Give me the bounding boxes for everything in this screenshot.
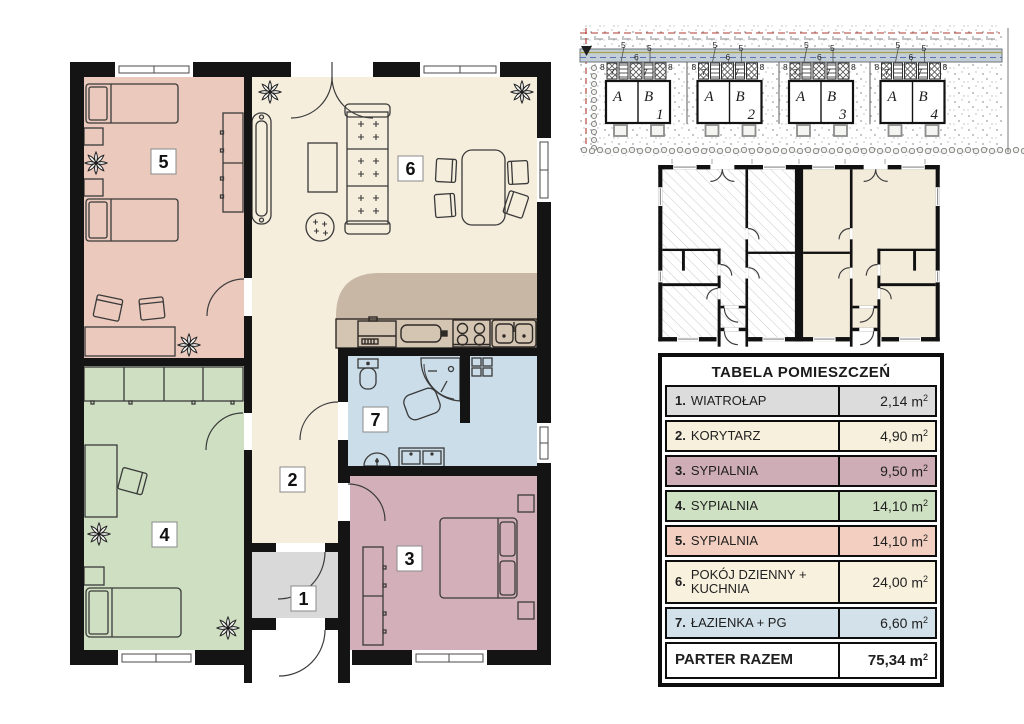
building-4-unit-b: B [919, 89, 928, 105]
row-number: 5. [675, 534, 686, 548]
svg-text:8: 8 [851, 62, 856, 72]
svg-text:8: 8 [875, 62, 880, 72]
plant-icon [259, 81, 281, 103]
room-name: ŁAZIENKA + PG [691, 616, 787, 630]
svg-text:1: 1 [298, 589, 308, 609]
svg-text:6: 6 [909, 52, 914, 62]
svg-text:4: 4 [159, 525, 169, 545]
svg-text:5: 5 [621, 40, 626, 50]
table-row: 5.SYPIALNIA 14,10 m2 [665, 525, 937, 557]
svg-text:5: 5 [830, 43, 835, 53]
table-row: 6.POKÓJ DZIENNY + KUCHNIA 24,00 m2 [665, 560, 937, 604]
kitchen-counter [336, 317, 537, 348]
svg-text:7: 7 [370, 410, 380, 430]
svg-text:5: 5 [647, 43, 652, 53]
mini-dimension-ticks [672, 159, 925, 164]
room-area: 4,90 m2 [838, 422, 935, 450]
room-label-3: 3 [397, 546, 422, 571]
svg-text:6: 6 [405, 159, 415, 179]
svg-text:6: 6 [726, 52, 731, 62]
row-number: 3. [675, 464, 686, 478]
mini-duplex-plan [658, 159, 939, 347]
building-4-unit-a: A [887, 89, 898, 105]
room-table: TABELA POMIESZCZEŃ 1.WIATROŁAP 2,14 m2 2… [658, 353, 944, 687]
total-label: PARTER RAZEM [675, 652, 793, 669]
room-name: SYPIALNIA [691, 464, 758, 478]
room-label-6: 6 [398, 156, 423, 181]
row-number: 1. [675, 394, 686, 408]
building-2-unit-b: B [736, 89, 745, 105]
svg-text:7: 7 [702, 67, 707, 77]
table-row: 2.KORYTARZ 4,90 m2 [665, 420, 937, 452]
svg-text:5: 5 [158, 152, 168, 172]
svg-text:5: 5 [713, 40, 718, 50]
row-number: 4. [675, 499, 686, 513]
room-3-fill [348, 476, 537, 650]
row-number: 6. [675, 575, 686, 589]
svg-text:8: 8 [600, 62, 605, 72]
mini-unit-b-highlighted [799, 165, 940, 347]
total-area: 75,34 m2 [838, 644, 935, 677]
svg-text:5: 5 [922, 43, 927, 53]
room-label-2: 2 [280, 467, 305, 492]
plant-icon [217, 617, 239, 639]
svg-text:7: 7 [735, 67, 740, 77]
svg-text:5: 5 [896, 40, 901, 50]
svg-text:7: 7 [918, 67, 923, 77]
room-name: SYPIALNIA [691, 499, 758, 513]
building-1-number: 1 [656, 107, 664, 123]
room-area: 2,14 m2 [838, 387, 935, 415]
svg-text:6: 6 [817, 52, 822, 62]
svg-text:5: 5 [804, 40, 809, 50]
svg-text:8: 8 [943, 62, 948, 72]
svg-text:8: 8 [760, 62, 765, 72]
room-area: 14,10 m2 [838, 527, 935, 555]
main-floor-plan: 1 2 3 4 5 6 7 [70, 62, 551, 683]
svg-text:8: 8 [783, 62, 788, 72]
room-area: 24,00 m2 [838, 562, 935, 602]
svg-text:5: 5 [739, 43, 744, 53]
row-number: 2. [675, 429, 686, 443]
room-label-5: 5 [151, 149, 176, 174]
svg-text:2: 2 [287, 470, 297, 490]
mini-unit-a-hatched [658, 165, 799, 347]
building-1-unit-b: B [644, 89, 653, 105]
svg-text:7: 7 [610, 67, 615, 77]
site-plan: A B 1 A B 2 A B 3 A B 4 55 6 87 78 55 6 … [578, 25, 1024, 156]
building-1-unit-a: A [612, 89, 623, 105]
room-label-7: 7 [363, 407, 388, 432]
room-table-title: TABELA POMIESZCZEŃ [665, 359, 937, 385]
site-road [580, 49, 1002, 62]
room-label-4: 4 [152, 522, 177, 547]
building-2-unit-a: A [704, 89, 715, 105]
table-row: 4.SYPIALNIA 14,10 m2 [665, 490, 937, 522]
svg-text:6: 6 [634, 52, 639, 62]
room-name: KORYTARZ [691, 429, 761, 443]
building-3-unit-b: B [827, 89, 836, 105]
room-name: POKÓJ DZIENNY + KUCHNIA [691, 568, 834, 597]
building-3-number: 3 [838, 107, 847, 123]
svg-text:7: 7 [643, 67, 648, 77]
plant-icon [88, 523, 110, 545]
building-4-number: 4 [931, 107, 939, 123]
table-row: 1.WIATROŁAP 2,14 m2 [665, 385, 937, 417]
room-name: WIATROŁAP [691, 394, 767, 408]
svg-text:7: 7 [826, 67, 831, 77]
plant-icon [511, 81, 533, 103]
building-3-unit-a: A [795, 89, 806, 105]
room-label-1: 1 [291, 586, 316, 611]
table-total-row: PARTER RAZEM 75,34 m2 [665, 642, 937, 679]
building-2-number: 2 [748, 107, 756, 123]
room-area: 9,50 m2 [838, 457, 935, 485]
entry-porch [252, 630, 338, 683]
table-row: 7.ŁAZIENKA + PG 6,60 m2 [665, 607, 937, 639]
plant-icon [178, 334, 200, 356]
table-row: 3.SYPIALNIA 9,50 m2 [665, 455, 937, 487]
svg-text:8: 8 [668, 62, 673, 72]
floorplan-page: A B 1 A B 2 A B 3 A B 4 55 6 87 78 55 6 … [0, 0, 1024, 724]
svg-text:3: 3 [404, 549, 414, 569]
room-5-fill [84, 77, 244, 358]
room-name: SYPIALNIA [691, 534, 758, 548]
room-area: 14,10 m2 [838, 492, 935, 520]
svg-text:8: 8 [692, 62, 697, 72]
svg-text:7: 7 [885, 67, 890, 77]
plant-icon [85, 152, 107, 174]
row-number: 7. [675, 616, 686, 630]
room-area: 6,60 m2 [838, 609, 935, 637]
svg-text:7: 7 [793, 67, 798, 77]
